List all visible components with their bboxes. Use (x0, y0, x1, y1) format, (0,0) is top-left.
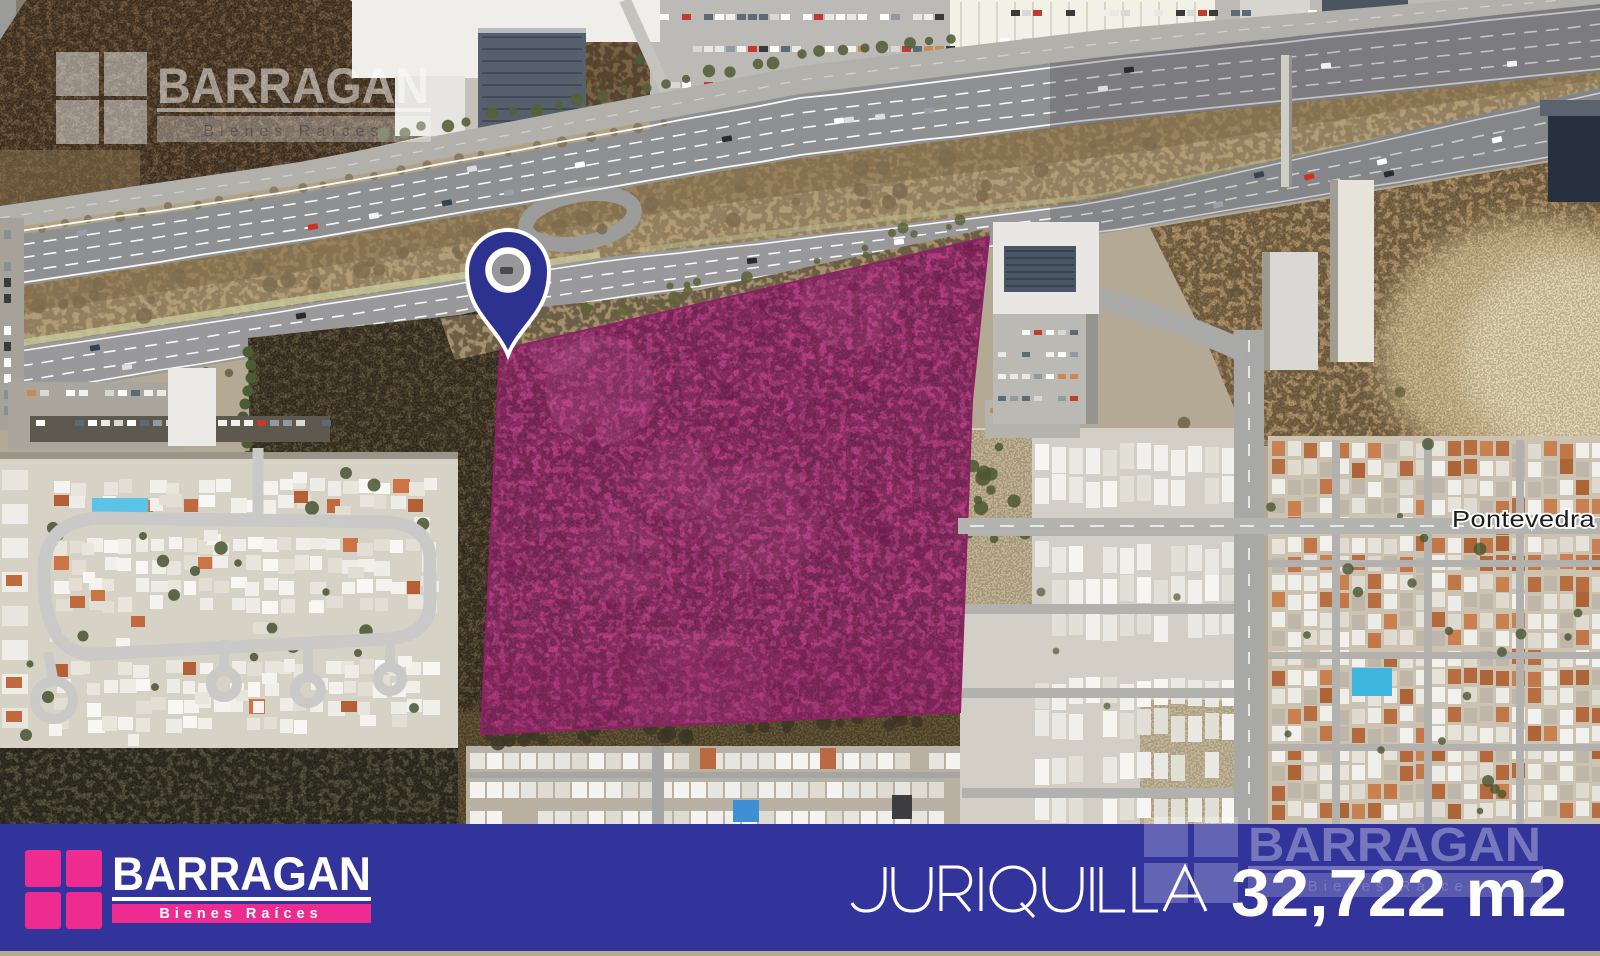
svg-text:32,722 m2: 32,722 m2 (1231, 856, 1567, 931)
svg-text:Bienes Raíces: Bienes Raíces (203, 123, 384, 140)
svg-text:BARRAGAN: BARRAGAN (112, 847, 371, 900)
svg-text:Bienes Raíces: Bienes Raíces (159, 906, 322, 922)
svg-text:BARRAGAN: BARRAGAN (157, 58, 429, 114)
svg-text:Pontevedra: Pontevedra (1452, 506, 1595, 532)
